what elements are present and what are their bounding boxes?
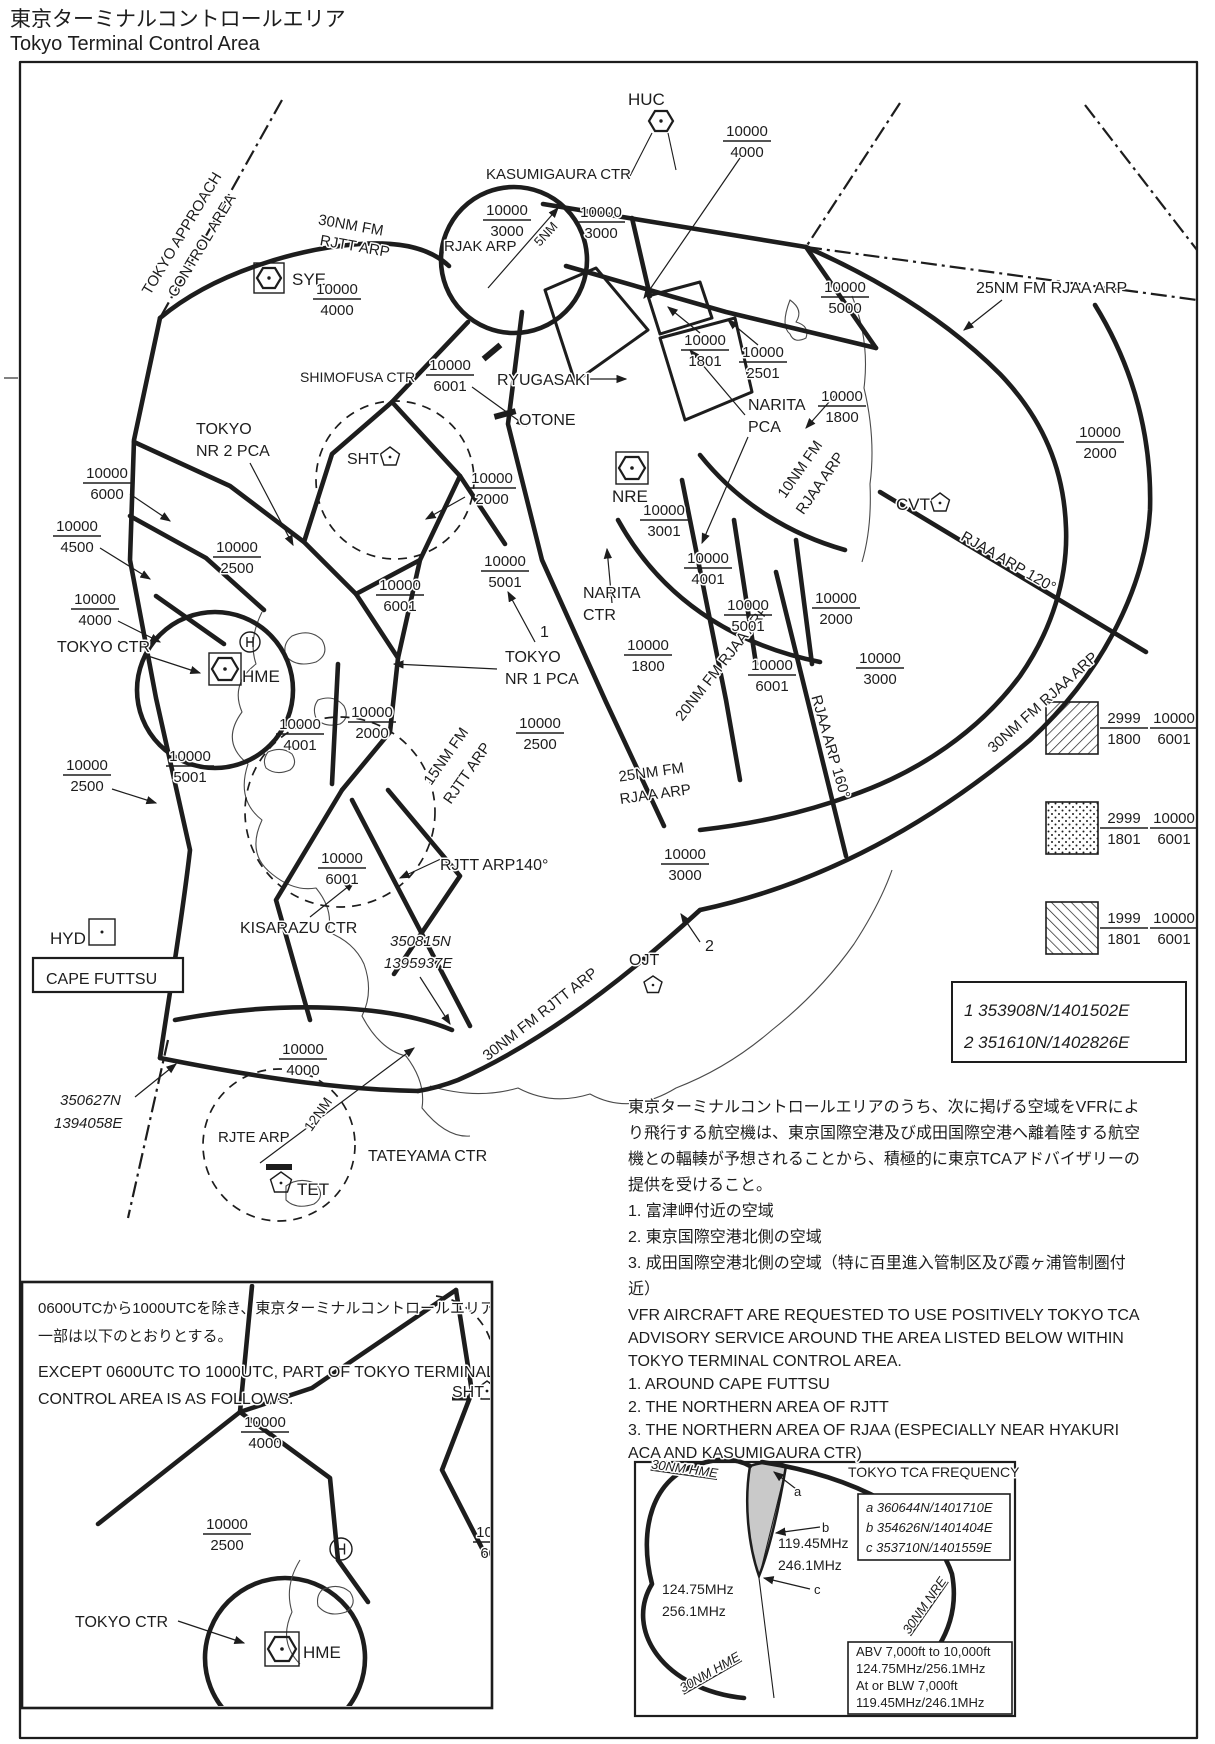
fraction-upper-limit: 10000 <box>74 591 116 608</box>
fraction-lower-limit: 6000 <box>90 486 123 503</box>
legend-tca-fraction: 100006001 <box>1150 810 1198 848</box>
coord-1394058e: 1394058E <box>54 1115 123 1132</box>
vortac-ojt-icon <box>644 976 662 993</box>
label-ryugasaki: RYUGASAKI <box>497 372 590 389</box>
fraction-upper-limit: 10000 <box>321 850 363 867</box>
freq-point-a: a <box>794 1484 802 1499</box>
advisory-note-jp-line: り飛行する航空機は、東京国際空港及び成田国際空港へ離着陸する航空 <box>628 1124 1140 1142</box>
label-tokyo-ctr: TOKYO CTR <box>57 639 150 656</box>
label-25nm-rjaa-s-1: 25NM FM <box>618 760 686 786</box>
fraction-lower-limit: 6001 <box>383 598 416 615</box>
label-cape-futtsu: CAPE FUTTSU <box>46 971 157 988</box>
fraction-upper-limit: 10000 <box>726 123 768 140</box>
fraction-lower-limit: 3000 <box>490 223 523 240</box>
label-tokyo-nr1-1: TOKYO <box>505 649 561 666</box>
inset-label-tokyo-ctr: TOKYO CTR <box>75 1614 168 1631</box>
fraction-lower-limit: 2501 <box>746 365 779 382</box>
advisory-note-en-line: 3. THE NORTHERN AREA OF RJAA (ESPECIALLY… <box>628 1422 1119 1439</box>
fraction-lower-limit: 5000 <box>828 300 861 317</box>
fraction-upper-limit: 10000 <box>56 518 98 535</box>
coastline <box>232 296 892 1206</box>
fraction-upper-limit: 10000 <box>351 704 393 721</box>
fraction-lower-limit: 6001 <box>480 1545 513 1562</box>
altitude-fraction: 100003000 <box>661 846 709 884</box>
label-rjtt-140: RJTT ARP140° <box>440 857 548 874</box>
fraction-lower-limit: 5001 <box>731 618 764 635</box>
fraction-lower-limit: 4500 <box>60 539 93 556</box>
inset-note-en-line: CONTROL AREA IS AS FOLLOWS. <box>38 1391 293 1408</box>
label-narita-pca-1: NARITA <box>748 397 806 414</box>
freq-point-c: c <box>814 1582 821 1597</box>
fraction-upper-limit: 10000 <box>627 637 669 654</box>
altitude-fraction: 100001800 <box>624 637 672 675</box>
label-shimofusa-ctr: SHIMOFUSA CTR <box>300 369 415 385</box>
inset-note-jp-line: 一部は以下のとおりとする。 <box>38 1328 233 1345</box>
altitude-fraction: 100004000 <box>279 1041 327 1079</box>
altitude-fraction: 100001801 <box>681 332 729 370</box>
legend-restricted-fraction: 19991801 <box>1100 910 1148 948</box>
altitude-fraction: 100002000 <box>1076 424 1124 462</box>
fraction-lower-limit: 4000 <box>320 302 353 319</box>
fraction-lower-limit: 4001 <box>283 737 316 754</box>
navaid-label-cvt: CVT <box>896 495 930 514</box>
fraction-upper-limit: 10000 <box>684 332 726 349</box>
label-narita-ctr-2: CTR <box>583 607 616 624</box>
advisory-note-en-line: 2. THE NORTHERN AREA OF RJTT <box>628 1399 889 1416</box>
label-12nm: 12NM <box>301 1094 336 1134</box>
fraction-upper-limit: 10000 <box>282 1041 324 1058</box>
navaid-label-ojt: OJT <box>629 952 659 969</box>
fraction-upper-limit: 10000 <box>824 279 866 296</box>
fraction-upper-limit: 10000 <box>687 550 729 567</box>
fraction-upper-limit: 10000 <box>742 344 784 361</box>
label-kasumigaura-ctr: KASUMIGAURA CTR <box>486 166 631 183</box>
fraction-upper-limit: 10000 <box>519 715 561 732</box>
advisory-note-en-line: VFR AIRCRAFT ARE REQUESTED TO USE POSITI… <box>628 1307 1140 1324</box>
altitude-fraction: 100005001 <box>481 553 529 591</box>
altitude-fraction: 100005000 <box>821 279 869 317</box>
label-30nm-rjtt-bottom: 30NM FM RJTT ARP <box>480 964 601 1064</box>
altitude-fraction: 100003000 <box>483 202 531 240</box>
label-rjte-arp: RJTE ARP <box>218 1129 290 1146</box>
legend-hatch-down-swatch <box>1046 702 1098 754</box>
fraction-upper-limit: 10000 <box>471 470 513 487</box>
fraction-lower-limit: 6001 <box>1157 831 1190 848</box>
fraction-upper-limit: 10000 <box>1153 810 1195 827</box>
advisory-note-en-line: ACA AND KASUMIGAURA CTR) <box>628 1445 862 1462</box>
fraction-lower-limit: 2000 <box>1083 445 1116 462</box>
legend-hatch-up-swatch <box>1046 902 1098 954</box>
navaid-label-huc: HUC <box>628 90 665 109</box>
fraction-upper-limit: 10000 <box>1079 424 1121 441</box>
fraction-upper-limit: 10000 <box>664 846 706 863</box>
fraction-lower-limit: 3000 <box>863 671 896 688</box>
advisory-note-jp-line: 1. 富津岬付近の空域 <box>628 1202 774 1220</box>
fraction-lower-limit: 5001 <box>173 769 206 786</box>
freq-coordinate-line: a 360644N/1401710E <box>866 1500 993 1515</box>
freq-coordinate-line: b 354626N/1401404E <box>866 1520 993 1535</box>
vortac-cvt-icon <box>931 493 950 511</box>
navaid-label-tet: TET <box>297 1180 329 1199</box>
coordinate-line: 1 353908N/1401502E <box>964 1001 1130 1020</box>
coord-1395937e: 1395937E <box>384 955 453 972</box>
fraction-lower-limit: 6001 <box>1157 931 1190 948</box>
fraction-upper-limit: 10000 <box>1153 710 1195 727</box>
vor-hexagon-nre-icon <box>616 452 648 484</box>
fraction-lower-limit: 5001 <box>488 574 521 591</box>
coordinate-line: 2 351610N/1402826E <box>963 1033 1130 1052</box>
freq-note-line: At or BLW 7,000ft <box>856 1678 958 1693</box>
fraction-lower-limit: 2500 <box>523 736 556 753</box>
advisory-note-jp-line: 3. 成田国際空港北側の空域（特に百里進入管制区及び霞ヶ浦管制圏付 <box>628 1254 1126 1272</box>
freq-119: 119.45MHz <box>778 1535 849 1551</box>
inset-note-en-line: EXCEPT 0600UTC TO 1000UTC, PART OF TOKYO… <box>38 1364 495 1381</box>
fraction-lower-limit: 1800 <box>825 409 858 426</box>
fraction-upper-limit: 10000 <box>580 204 622 221</box>
navaid-label-hyd: HYD <box>50 929 86 948</box>
label-kisarazu-ctr: KISARAZU CTR <box>240 920 357 937</box>
altitude-fraction: 100004000 <box>723 123 771 161</box>
fraction-lower-limit: 6001 <box>755 678 788 695</box>
fraction-upper-limit: 10000 <box>486 202 528 219</box>
freq-note-line: 119.45MHz/246.1MHz <box>856 1695 984 1710</box>
fraction-upper-limit: 10000 <box>643 502 685 519</box>
fraction-lower-limit: 6001 <box>1157 731 1190 748</box>
legend-restricted-fraction: 29991801 <box>1100 810 1148 848</box>
helipad-icon <box>240 632 260 652</box>
freq-124: 124.75MHz <box>662 1581 734 1597</box>
navaid-label-hme: HME <box>242 667 280 686</box>
fraction-upper-limit: 10000 <box>316 281 358 298</box>
advisory-note-jp-line: 2. 東京国際空港北側の空域 <box>628 1228 822 1246</box>
inset-note-jp-line: 0600UTCから1000UTCを除き、東京ターミナルコントロールエリアの <box>38 1300 510 1317</box>
page-title-en: Tokyo Terminal Control Area <box>10 33 261 55</box>
altitude-fraction: 100006001 <box>426 357 474 395</box>
tokyo-tca-chart: 東京ターミナルコントロールエリア Tokyo Terminal Control … <box>0 0 1215 1744</box>
altitude-fraction: 100004000 <box>71 591 119 629</box>
fraction-upper-limit: 10000 <box>1153 910 1195 927</box>
altitude-fraction: 100002500 <box>63 757 111 795</box>
page-title-jp: 東京ターミナルコントロールエリア <box>10 8 346 31</box>
label-narita-ctr-1: NARITA <box>583 585 641 602</box>
altitude-fraction: 100003000 <box>577 204 625 242</box>
advisory-note-jp-line: 近） <box>628 1280 660 1298</box>
chart-page: 東京ターミナルコントロールエリア Tokyo Terminal Control … <box>0 0 1215 1744</box>
fraction-lower-limit: 3000 <box>668 867 701 884</box>
fraction-upper-limit: 10000 <box>379 577 421 594</box>
label-otone: OTONE <box>519 412 576 429</box>
inset-label-sht: SHT <box>452 1384 484 1401</box>
fraction-lower-limit: 2000 <box>355 725 388 742</box>
fraction-upper-limit: 10000 <box>66 757 108 774</box>
altitude-fraction: 100002000 <box>812 590 860 628</box>
altitude-fraction: 100006001 <box>748 657 796 695</box>
altitude-fraction: 100003000 <box>856 650 904 688</box>
inset-box <box>22 1282 492 1708</box>
advisory-note-en-line: TOKYO TERMINAL CONTROL AREA. <box>628 1353 902 1370</box>
altitude-fraction: 100006001 <box>376 577 424 615</box>
freq-note-line: 124.75MHz/256.1MHz <box>856 1661 985 1676</box>
fraction-lower-limit: 2500 <box>210 1537 243 1554</box>
altitude-fraction: 100002500 <box>516 715 564 753</box>
legend-restricted-fraction: 29991800 <box>1100 710 1148 748</box>
fraction-lower-limit: 1801 <box>1107 931 1140 948</box>
vor-hexagon-huc-icon <box>649 111 673 131</box>
label-tokyo-nr1-2: NR 1 PCA <box>505 671 579 688</box>
label-rjaa-120: RJAA ARP 120° <box>958 528 1059 596</box>
label-rjak-arp: RJAK ARP <box>444 238 517 255</box>
fraction-upper-limit: 10000 <box>821 388 863 405</box>
freq-note-line: ABV 7,000ft to 10,000ft <box>856 1644 991 1659</box>
fraction-lower-limit: 4000 <box>78 612 111 629</box>
legend <box>1046 702 1098 954</box>
legend-tca-fraction: 100006001 <box>1150 910 1198 948</box>
fraction-upper-limit: 10000 <box>476 1524 518 1541</box>
legend-hatch-dots-swatch <box>1046 802 1098 854</box>
label-point-1: 1 <box>540 624 549 641</box>
altitude-fraction: 100002000 <box>468 470 516 508</box>
fraction-lower-limit: 2500 <box>220 560 253 577</box>
vor-hexagon-hme-icon <box>209 653 241 685</box>
legend-tca-fraction: 100006001 <box>1150 710 1198 748</box>
label-tokyo-nr2-1: TOKYO <box>196 421 252 438</box>
altitude-fraction: 100004000 <box>313 281 361 319</box>
fraction-lower-limit: 1801 <box>1107 831 1140 848</box>
fraction-upper-limit: 2999 <box>1107 810 1140 827</box>
fraction-lower-limit: 1801 <box>688 353 721 370</box>
label-tateyama-ctr: TATEYAMA CTR <box>368 1148 487 1165</box>
fraction-lower-limit: 4001 <box>691 571 724 588</box>
coord-350627n: 350627N <box>60 1092 121 1109</box>
fraction-lower-limit: 4000 <box>286 1062 319 1079</box>
altitude-fraction: 100006000 <box>83 465 131 503</box>
fraction-lower-limit: 2000 <box>475 491 508 508</box>
altitude-fraction: 100004500 <box>53 518 101 556</box>
altitude-fraction: 100004001 <box>684 550 732 588</box>
advisory-note-jp-line: 東京ターミナルコントロールエリアのうち、次に掲げる空域をVFRによ <box>628 1098 1140 1116</box>
fraction-upper-limit: 10000 <box>206 1516 248 1533</box>
label-25nm-rjaa: 25NM FM RJAA ARP <box>976 280 1127 297</box>
advisory-note-en-line: 1. AROUND CAPE FUTTSU <box>628 1376 830 1393</box>
fraction-upper-limit: 2999 <box>1107 710 1140 727</box>
ndb-hyd-icon <box>89 919 115 945</box>
fraction-lower-limit: 6001 <box>433 378 466 395</box>
fraction-upper-limit: 10000 <box>429 357 471 374</box>
fraction-lower-limit: 1800 <box>631 658 664 675</box>
vortac-sht-icon <box>381 447 400 465</box>
freq-title: TOKYO TCA FREQUENCY <box>848 1464 1020 1480</box>
advisory-note-jp-line: 機との輻輳が予想されることから、積極的に東京TCAアドバイザリーの <box>628 1150 1140 1168</box>
fraction-lower-limit: 4000 <box>730 144 763 161</box>
fraction-upper-limit: 10000 <box>279 716 321 733</box>
label-narita-pca-2: PCA <box>748 419 781 436</box>
inset-label-hme: HME <box>303 1643 341 1662</box>
fraction-upper-limit: 10000 <box>484 553 526 570</box>
fraction-upper-limit: 10000 <box>859 650 901 667</box>
fraction-lower-limit: 3000 <box>584 225 617 242</box>
fraction-lower-limit: 6001 <box>325 871 358 888</box>
freq-246: 246.1MHz <box>778 1557 842 1573</box>
coord-350815n: 350815N <box>390 933 451 950</box>
fraction-upper-limit: 10000 <box>727 597 769 614</box>
fraction-upper-limit: 10000 <box>216 539 258 556</box>
freq-256: 256.1MHz <box>662 1603 726 1619</box>
altitude-fraction: 100003001 <box>640 502 688 540</box>
fraction-lower-limit: 4000 <box>248 1435 281 1452</box>
altitude-fraction: 100006001 <box>318 850 366 888</box>
fraction-upper-limit: 10000 <box>169 748 211 765</box>
fraction-upper-limit: 10000 <box>815 590 857 607</box>
altitude-fraction: 100002500 <box>213 539 261 577</box>
freq-point-b: b <box>822 1520 829 1535</box>
label-5nm: 5NM <box>531 219 561 249</box>
fraction-lower-limit: 2500 <box>70 778 103 795</box>
advisory-note-en-line: ADVISORY SERVICE AROUND THE AREA LISTED … <box>628 1330 1124 1347</box>
fraction-lower-limit: 1800 <box>1107 731 1140 748</box>
label-tokyo-nr2-2: NR 2 PCA <box>196 443 270 460</box>
fraction-upper-limit: 10000 <box>751 657 793 674</box>
control-zone-circles <box>203 401 474 1221</box>
fraction-lower-limit: 2000 <box>819 611 852 628</box>
advisory-note-jp-line: 提供を受けること。 <box>628 1176 772 1194</box>
label-point-2: 2 <box>705 938 714 955</box>
freq-coordinate-line: c 353710N/1401559E <box>866 1540 992 1555</box>
fraction-upper-limit: 1999 <box>1107 910 1140 927</box>
vortac-tet-icon <box>271 1172 292 1192</box>
fraction-lower-limit: 3001 <box>647 523 680 540</box>
navaid-label-sht: SHT <box>347 451 379 468</box>
fraction-upper-limit: 10000 <box>244 1414 286 1431</box>
fraction-upper-limit: 10000 <box>86 465 128 482</box>
